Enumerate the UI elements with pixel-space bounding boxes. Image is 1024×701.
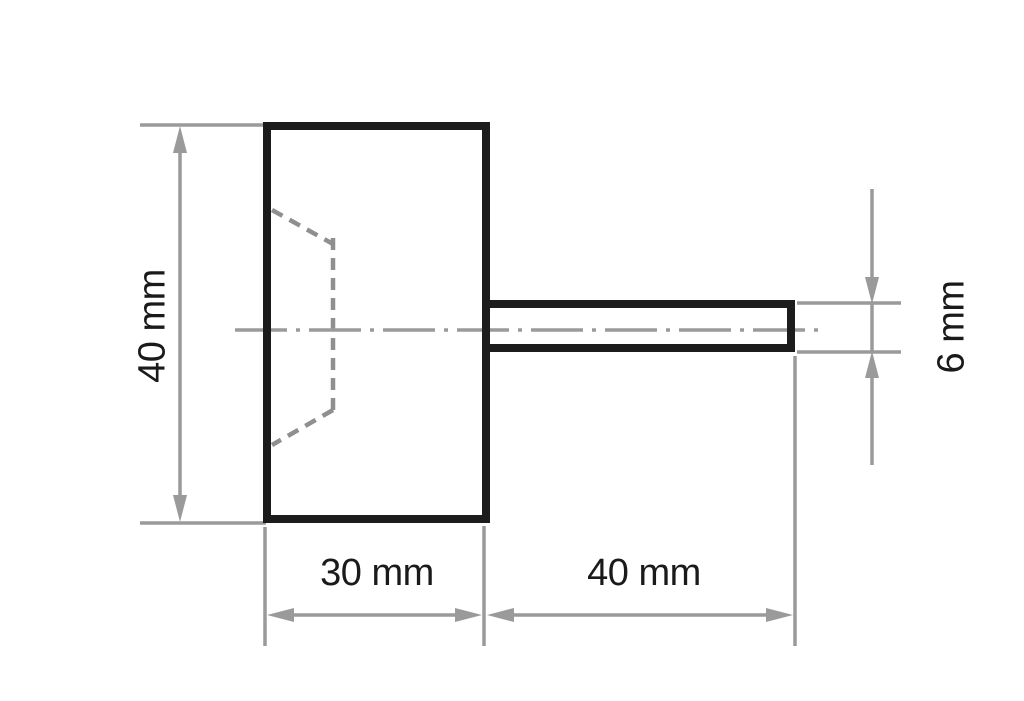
- dim-label-shank-length: 40 mm: [587, 552, 701, 594]
- dim-label-body-height: 40 mm: [131, 269, 173, 383]
- dim-label-shank-diameter: 6 mm: [930, 281, 972, 374]
- dim-label-body-width: 30 mm: [320, 552, 434, 594]
- technical-drawing: 40 mm 6 mm 30 mm 40 mm: [0, 0, 1024, 701]
- technical-drawing-canvas: 40 mm 6 mm 30 mm 40 mm: [0, 0, 1024, 701]
